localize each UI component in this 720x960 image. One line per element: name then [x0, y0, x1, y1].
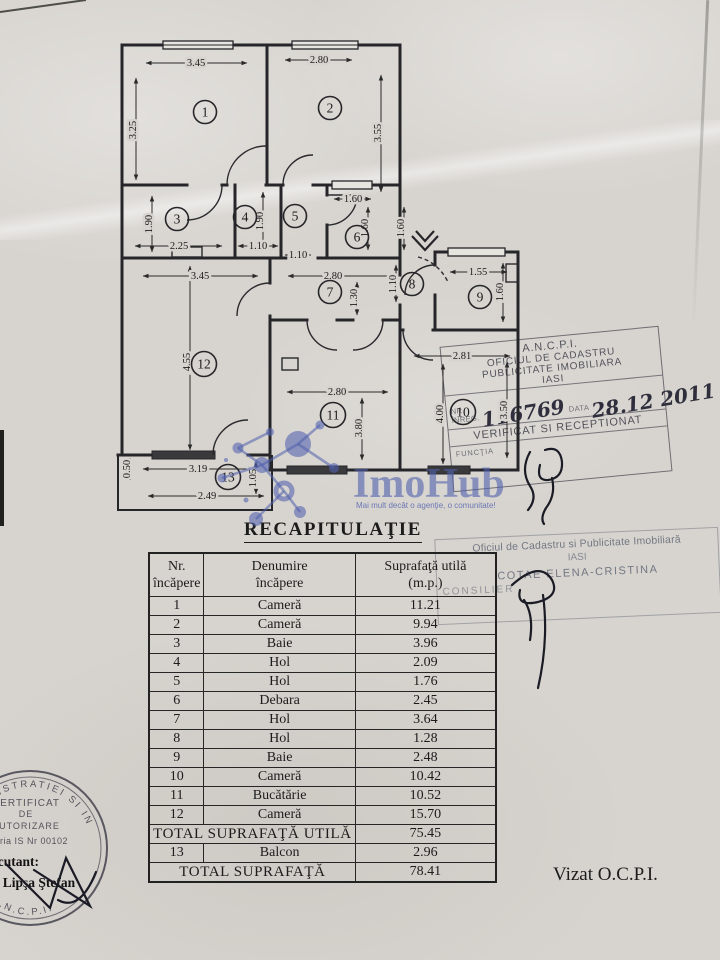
dim-label: 1.10: [388, 275, 399, 293]
svg-text:13: 13: [221, 470, 235, 485]
svg-text:A.N.C.P.I.: A.N.C.P.I.: [0, 894, 55, 918]
room-number: 3: [166, 208, 189, 231]
table-row: 6Debara2.45: [149, 692, 496, 711]
room-number: 4: [234, 206, 257, 229]
room-number: 2: [319, 97, 342, 120]
room-number: 9: [469, 286, 492, 309]
room-number: 5: [284, 205, 307, 228]
room-number: 1: [194, 101, 217, 124]
table-row: 8Hol1.28: [149, 730, 496, 749]
room-number: 11: [321, 403, 346, 428]
table-row: 9Baie2.48: [149, 749, 496, 768]
svg-text:ADMINISTRATIEI SI INTERNELOR: ADMINISTRATIEI SI INTERNELOR: [0, 0, 95, 828]
stamp-seria: Seria IS Nr 00102: [0, 836, 68, 846]
col-header-name: Denumireîncăpere: [204, 553, 355, 597]
dim-label: 2.80: [328, 387, 346, 398]
vizat-ocpi-label: Vizat O.C.P.I.: [553, 864, 658, 886]
svg-text:11: 11: [327, 408, 340, 423]
stamp-arc-top-text: ADMINISTRATIEI SI INTERNELOR: [0, 0, 95, 828]
dim-label: 1.60: [360, 219, 371, 237]
room-number: 7: [319, 281, 342, 304]
dim-label: 1.60: [396, 219, 407, 237]
room-number: 8: [401, 273, 424, 296]
dim-label: 1.90: [144, 215, 155, 233]
svg-text:3: 3: [174, 212, 181, 227]
table-row: 10Cameră10.42: [149, 768, 496, 787]
balcon-row: 13Balcon2.96: [149, 844, 496, 863]
dim-label: 3.45: [187, 58, 205, 69]
imohub-tagline: Mai mult decât o agenţie, o comunitate!: [356, 501, 496, 510]
executant-signature: [6, 858, 96, 908]
paper-edge-crease: [692, 0, 709, 330]
stamp-certificat: CERTIFICAT: [0, 798, 60, 809]
executant-name: ing. Lipşa Ştefan: [0, 875, 76, 890]
table-row: 5Hol1.76: [149, 673, 496, 692]
executant-label: Executant:: [0, 854, 39, 869]
stamp-arc-bottom-text: A.N.C.P.I.: [0, 894, 55, 918]
dim-label: 1.55: [469, 267, 487, 278]
table-row: 11Bucătărie10.52: [149, 787, 496, 806]
dim-label: 3.25: [128, 121, 139, 139]
scan-edge-artifact: [0, 430, 4, 526]
total-value: 78.41: [355, 863, 496, 883]
svg-text:9: 9: [477, 290, 484, 305]
col-header-area: Suprafaţă utilă(m.p.): [355, 553, 496, 597]
table-row: 12Cameră15.70: [149, 806, 496, 825]
imohub-logo-graphic: [218, 421, 340, 527]
dim-label: 1.30: [349, 289, 360, 307]
dim-label: 2.25: [170, 241, 188, 252]
dim-label: 2.80: [324, 271, 342, 282]
room-number: 13: [216, 465, 241, 490]
dim-label: 3.45: [191, 271, 209, 282]
table-header-row: Nr.încăpere Denumireîncăpere Suprafaţă u…: [149, 553, 496, 597]
table-row: 2Cameră9.94: [149, 616, 496, 635]
svg-text:1: 1: [202, 105, 209, 120]
dim-label: 4.55: [182, 353, 193, 371]
page-title: RECAPITULAŢIE: [244, 519, 414, 543]
dim-label: 2.49: [198, 491, 216, 502]
reg-date-label: data: [564, 403, 592, 418]
table-row: 1Cameră11.21: [149, 597, 496, 616]
dim-label: 1.10: [289, 250, 307, 261]
total-label: TOTAL SUPRAFAŢĂ: [149, 863, 355, 883]
dim-label: 3.80: [354, 419, 365, 437]
dim-label: 3.55: [373, 124, 384, 142]
stamp-de: DE: [19, 809, 34, 819]
dim-label: 1.60: [344, 194, 362, 205]
svg-text:12: 12: [197, 357, 211, 372]
svg-text:2: 2: [327, 101, 334, 116]
entrance-door-dashed: [418, 257, 448, 282]
room-number: 6: [346, 226, 369, 249]
dim-label: 1.10: [249, 241, 267, 252]
dim-label: 1.90: [255, 212, 266, 230]
dim-label: 4.00: [435, 405, 446, 423]
dim-label: 1.05: [248, 469, 259, 487]
paper-crease: [0, 120, 720, 240]
plan-doors: [187, 146, 448, 455]
svg-text:6: 6: [354, 230, 361, 245]
dim-label: 1.60: [495, 283, 506, 301]
dim-label: 2.80: [310, 55, 328, 66]
svg-text:4: 4: [242, 210, 249, 225]
dim-label: 3.19: [189, 464, 207, 475]
round-authorization-stamp: ADMINISTRATIEI SI INTERNELOR A.N.C.P.I. …: [0, 0, 107, 925]
svg-text:7: 7: [327, 285, 334, 300]
svg-text:5: 5: [292, 209, 299, 224]
balcony-outline: [118, 455, 272, 510]
recap-table: Nr.încăpere Denumireîncăpere Suprafaţă u…: [148, 552, 497, 883]
room-number: 12: [192, 352, 217, 377]
total-util-label: TOTAL SUPRAFAŢĂ UTILĂ: [149, 825, 355, 844]
entrance-arrow-icon: [412, 231, 438, 250]
table-row: 3Baie3.96: [149, 635, 496, 654]
closet: [172, 247, 202, 257]
svg-text:8: 8: [409, 277, 416, 292]
corner-fold-line: [0, 0, 86, 12]
closet: [506, 264, 518, 282]
closet: [282, 358, 298, 370]
stamp-autorizare: AUTORIZARE: [0, 821, 60, 831]
total-util-value: 75.45: [355, 825, 496, 844]
table-row: 4Hol2.09: [149, 654, 496, 673]
reg-number-label: Nr. înreg.: [446, 404, 482, 429]
total-util-row: TOTAL SUPRAFAŢĂ UTILĂ 75.45: [149, 825, 496, 844]
ancpi-registration-stamp: A.N.C.P.I. OFICIUL DE CADASTRU PUBLICITA…: [440, 326, 673, 492]
table-row: 7Hol3.64: [149, 711, 496, 730]
plan-room-numbers: 1 2 3 4 5 6 7 8 9 10 11 12 13: [166, 97, 492, 490]
col-header-nr: Nr.încăpere: [149, 553, 204, 597]
scanned-document-page: RECAPITULAŢIE Oficiul de Cadastru si Pub…: [0, 0, 720, 960]
dim-label: 0.50: [122, 460, 133, 478]
total-row: TOTAL SUPRAFAŢĂ 78.41: [149, 863, 496, 883]
